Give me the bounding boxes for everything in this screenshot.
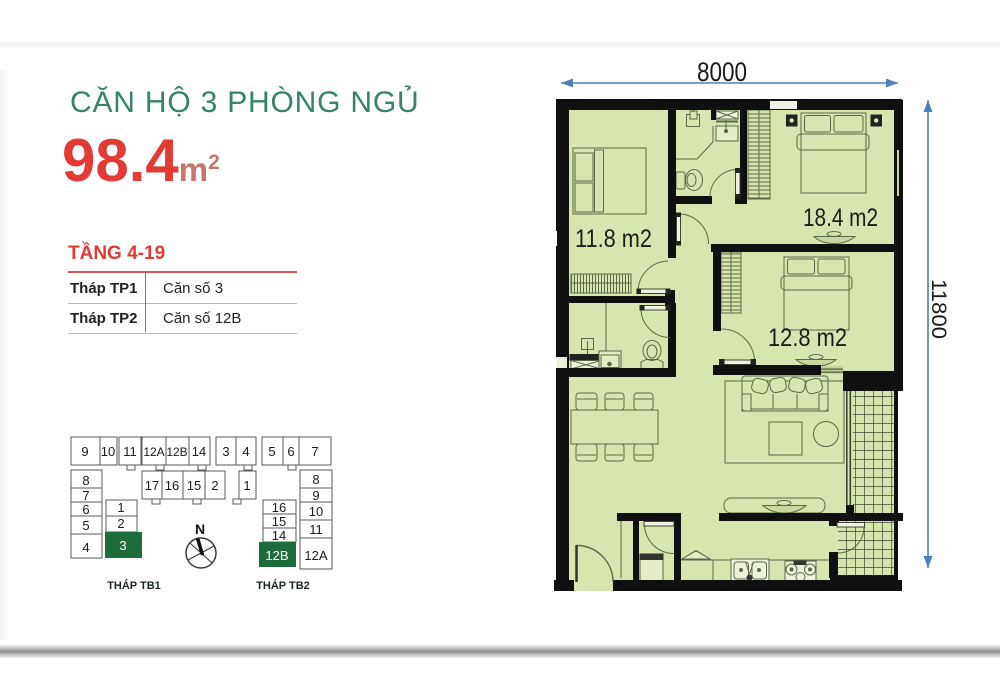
svg-text:12.8 m2: 12.8 m2 — [768, 324, 847, 352]
svg-text:11.8 m2: 11.8 m2 — [575, 225, 652, 253]
svg-text:8000: 8000 — [697, 57, 747, 87]
svg-text:11800: 11800 — [927, 279, 951, 339]
svg-text:18.4 m2: 18.4 m2 — [803, 204, 878, 232]
